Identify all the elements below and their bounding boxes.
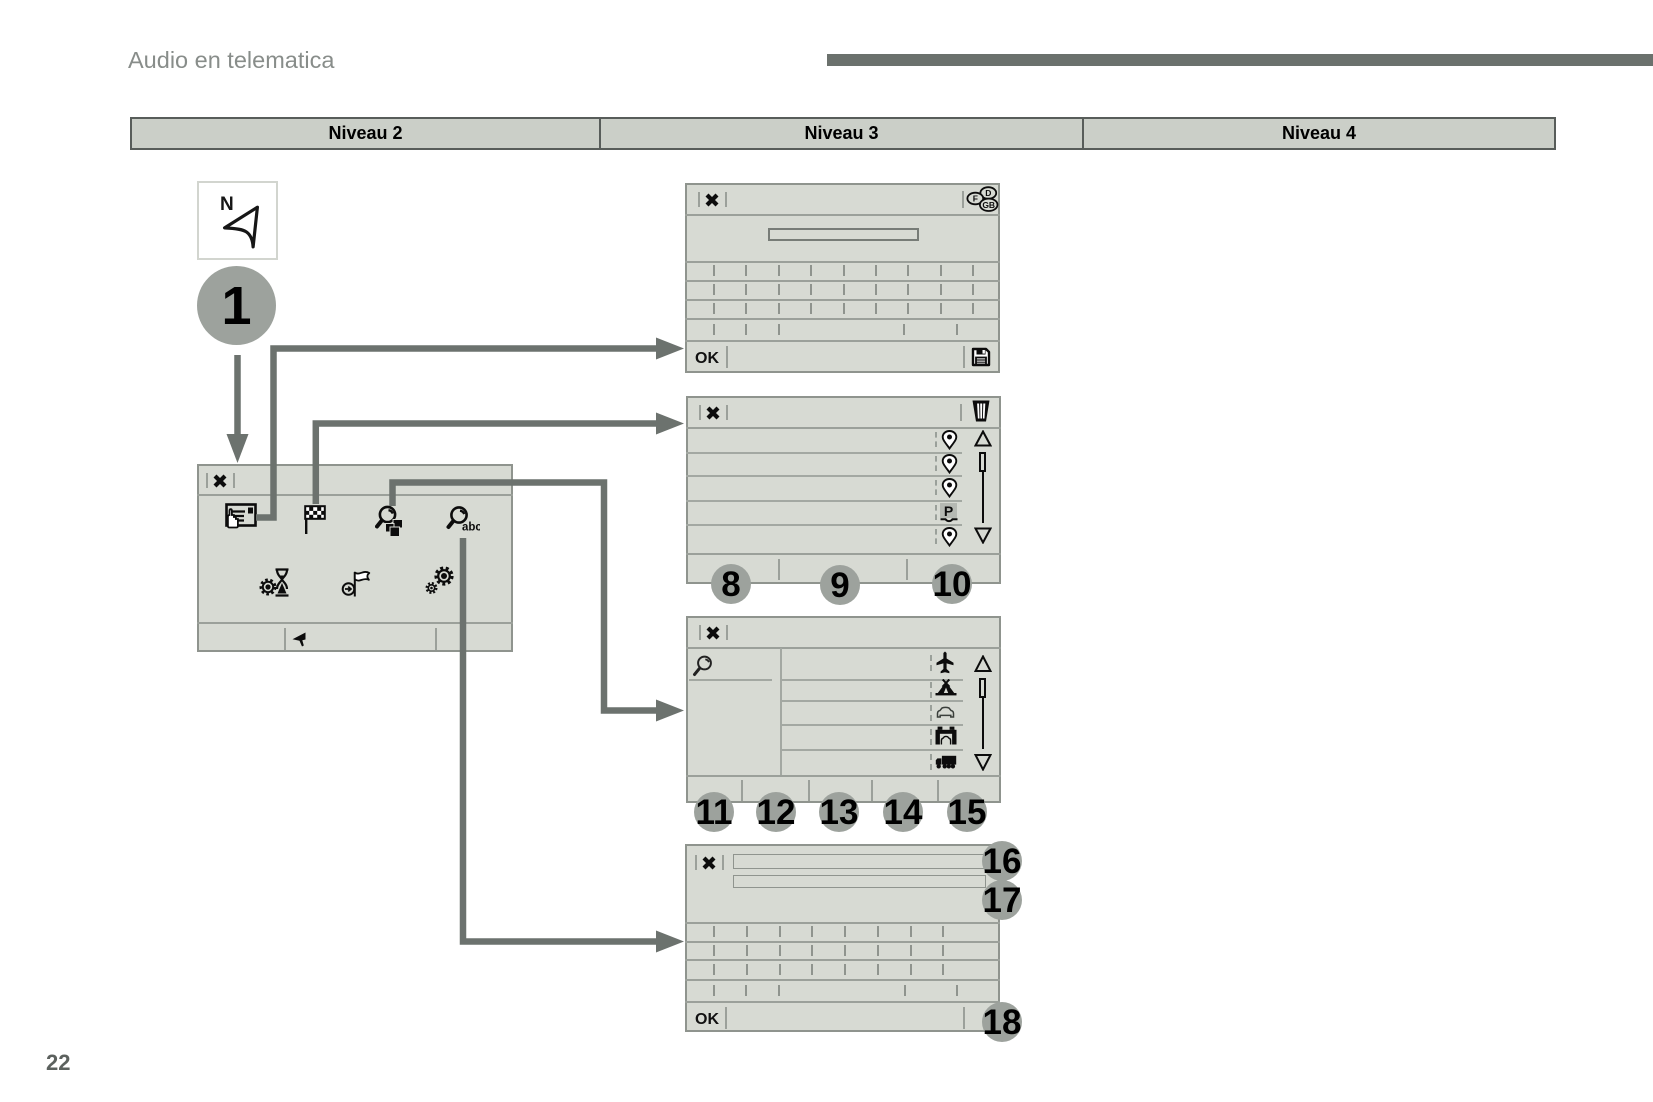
svg-text:D: D [985, 188, 991, 198]
svg-text:F: F [973, 194, 978, 204]
svg-text:abc: abc [462, 522, 480, 534]
svg-text:GB: GB [982, 200, 995, 210]
